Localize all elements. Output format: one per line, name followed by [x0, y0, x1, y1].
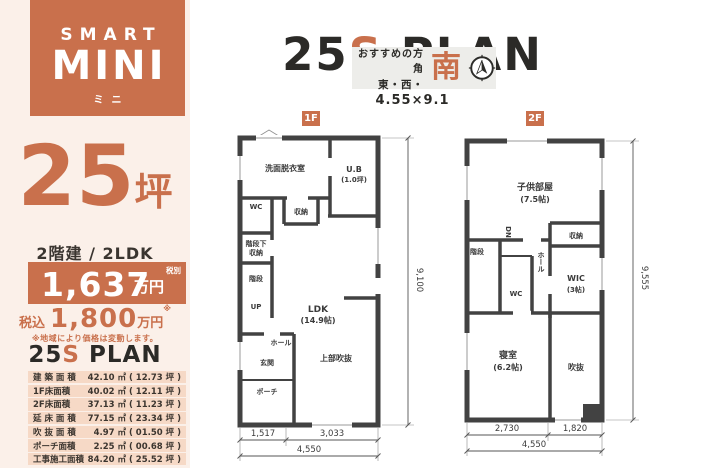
- room-label-wc-2f: WC: [510, 290, 523, 298]
- tax-included-label: 税込: [19, 316, 45, 331]
- room-size-kids: (7.5帖): [520, 194, 549, 204]
- plan-title-num: 25: [28, 342, 62, 368]
- tsubo-headline: 25坪: [0, 134, 190, 218]
- dim-2f-bottom-left: 2,730: [495, 424, 519, 434]
- room-label-bath: U.B: [346, 165, 362, 174]
- room-label-void-2f: 吹抜: [568, 362, 585, 372]
- dim-1f-bottom-total: 4,550: [297, 445, 321, 455]
- room-size-bath: (1.0坪): [341, 175, 367, 184]
- tsubo-number: 25: [18, 127, 135, 225]
- dim-2f-side: 9,555: [639, 266, 649, 290]
- table-row: 吹 抜 面 積4.97 ㎡ ( 01.50 坪 ): [28, 426, 186, 438]
- floor-tag-1f: 1F: [302, 111, 320, 126]
- table-row: 2F床面積37.13 ㎡ ( 11.23 坪 ): [28, 398, 186, 410]
- tax-included-line: 税込1,800万円※: [0, 304, 190, 334]
- price-unit: 万円: [134, 276, 164, 297]
- area-value: 77.15 ㎡ ( 23.34 坪 ): [88, 412, 181, 424]
- table-row: 延 床 面 積77.15 ㎡ ( 23.34 坪 ): [28, 412, 186, 424]
- room-label-closet-2f: 収納: [569, 231, 583, 240]
- direction-main: 南: [431, 53, 461, 83]
- room-size-bedroom: (6.2帖): [493, 362, 522, 372]
- room-label-porch: ポーチ: [257, 387, 278, 396]
- area-label: 2F床面積: [33, 398, 70, 410]
- footprint-size: 4.55×9.1: [122, 93, 703, 108]
- area-label: 工事施工面積: [33, 453, 84, 465]
- room-label-dn: DN: [504, 226, 512, 238]
- room-label-kids: 子供部屋: [517, 181, 553, 193]
- area-value: 42.10 ㎡ ( 12.73 坪 ): [88, 371, 181, 383]
- floorplan-2f: 子供部屋 (7.5帖) DN 収納 階段 WC ホール WIC (3帖) 寝室 …: [455, 128, 660, 468]
- room-label-understair-1: 階段下: [246, 239, 267, 248]
- area-table: 建 築 面 積42.10 ㎡ ( 12.73 坪 ) 1F床面積40.02 ㎡ …: [28, 371, 186, 467]
- area-label: ポーチ面積: [33, 440, 76, 452]
- dim-1f-bottom-right: 3,033: [320, 429, 344, 439]
- room-size-wic: (3帖): [567, 285, 585, 294]
- direction-label: おすすめの方角: [352, 45, 424, 75]
- room-label-void-above: 上部吹抜: [320, 353, 353, 363]
- room-label-entrance: 玄関: [260, 358, 274, 367]
- floorplan-1f: 洗面脱衣室 U.B (1.0坪) WC 収納 階段下 収納 階段 UP LDK …: [232, 128, 432, 468]
- room-label-hall: ホール: [271, 339, 292, 347]
- floor-tag-2f: 2F: [526, 111, 544, 126]
- dim-2f-bottom-right: 1,820: [563, 424, 587, 434]
- area-value: 37.13 ㎡ ( 11.23 坪 ): [88, 398, 181, 410]
- tax-included-asterisk: ※: [163, 304, 171, 313]
- table-row: 工事施工面積84.20 ㎡ ( 25.52 坪 ): [28, 453, 186, 465]
- room-label-closet: 収納: [294, 207, 308, 216]
- building-type: 2階建 / 2LDK: [0, 240, 190, 264]
- room-label-wc: WC: [250, 203, 263, 211]
- room-label-bedroom: 寝室: [499, 349, 517, 361]
- room-label-stairs-2f: 階段: [470, 247, 484, 256]
- area-value: 4.97 ㎡ ( 01.50 坪 ): [94, 426, 181, 438]
- price-tax-note: 税別: [166, 265, 181, 276]
- area-label: 延 床 面 積: [33, 412, 76, 424]
- dim-1f-side: 9,100: [414, 268, 424, 292]
- area-label: 吹 抜 面 積: [33, 426, 76, 438]
- direction-text: おすすめの方角 東・西・: [352, 45, 424, 92]
- room-label-washroom: 洗面脱衣室: [265, 163, 305, 173]
- table-row: 建 築 面 積42.10 ㎡ ( 12.73 坪 ): [28, 371, 186, 383]
- room-label-up: UP: [251, 303, 262, 311]
- room-label-ldk: LDK: [308, 305, 329, 315]
- area-label: 1F床面積: [33, 385, 70, 397]
- area-value: 84.20 ㎡ ( 25.52 坪 ): [88, 453, 181, 465]
- title-num: 25: [282, 28, 349, 81]
- recommended-direction-box: おすすめの方角 東・西・ 南: [352, 47, 496, 89]
- room-label-hall-2f: ホール: [537, 252, 545, 273]
- area-value: 40.02 ㎡ ( 12.11 坪 ): [88, 385, 181, 397]
- direction-list: 東・西・: [352, 77, 424, 92]
- tsubo-unit: 坪: [134, 170, 172, 214]
- price-banner: 1,637 万円 税別: [28, 262, 186, 304]
- tax-included-unit: 万円: [137, 316, 163, 331]
- room-label-understair-2: 収納: [249, 248, 263, 257]
- plan-title-s: S: [62, 342, 80, 368]
- plan-title-plan: PLAN: [80, 342, 162, 368]
- table-row: 1F床面積40.02 ㎡ ( 12.11 坪 ): [28, 385, 186, 397]
- sidebar-plan-title: 25S PLAN: [0, 342, 190, 368]
- room-label-wic: WIC: [567, 274, 585, 283]
- dim-2f-bottom-total: 4,550: [522, 440, 546, 450]
- dim-1f-bottom-left: 1,517: [251, 429, 275, 439]
- area-value: 2.25 ㎡ ( 00.68 坪 ): [94, 440, 181, 452]
- area-label: 建 築 面 積: [33, 371, 76, 383]
- table-row: ポーチ面積2.25 ㎡ ( 00.68 坪 ): [28, 439, 186, 451]
- room-label-stairs: 階段: [249, 274, 263, 283]
- compass-icon: [468, 53, 496, 83]
- tax-included-value: 1,800: [50, 304, 137, 334]
- room-size-ldk: (14.9帖): [300, 315, 335, 325]
